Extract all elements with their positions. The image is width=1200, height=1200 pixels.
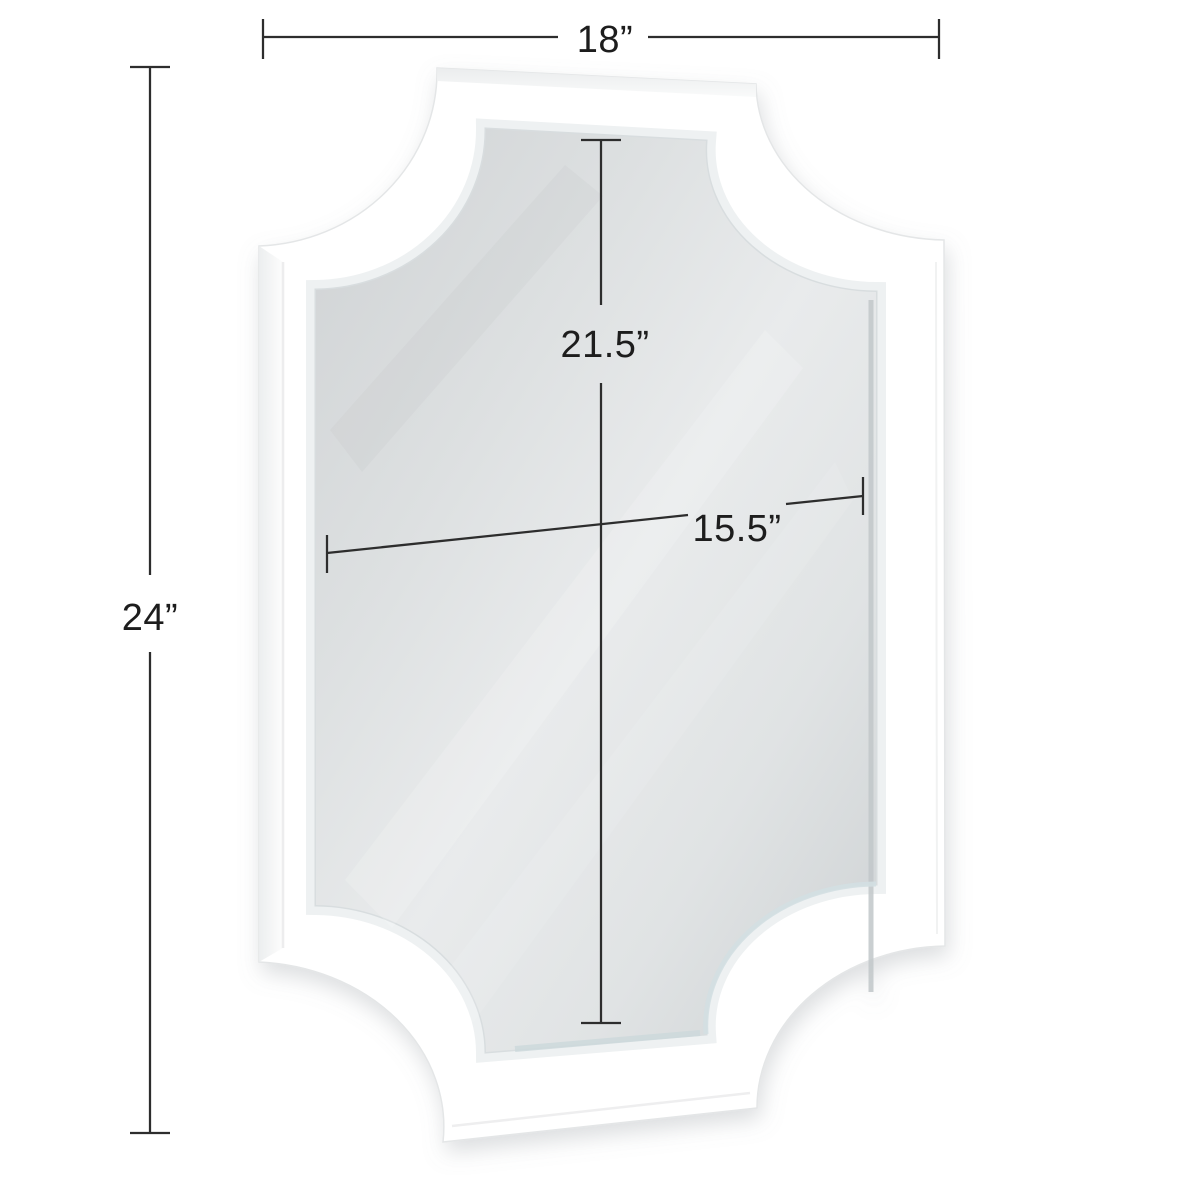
dim-label-overall-width: 18” <box>577 19 633 61</box>
frame-crease-right <box>936 262 937 934</box>
product-dimension-diagram: 18” 24” 21.5” <box>0 0 1200 1200</box>
mirror-frame-side-face <box>259 246 283 962</box>
dim-label-overall-height: 24” <box>122 597 178 639</box>
dim-label-mirror-height: 21.5” <box>560 324 649 366</box>
dim-label-mirror-width: 15.5” <box>692 508 781 550</box>
